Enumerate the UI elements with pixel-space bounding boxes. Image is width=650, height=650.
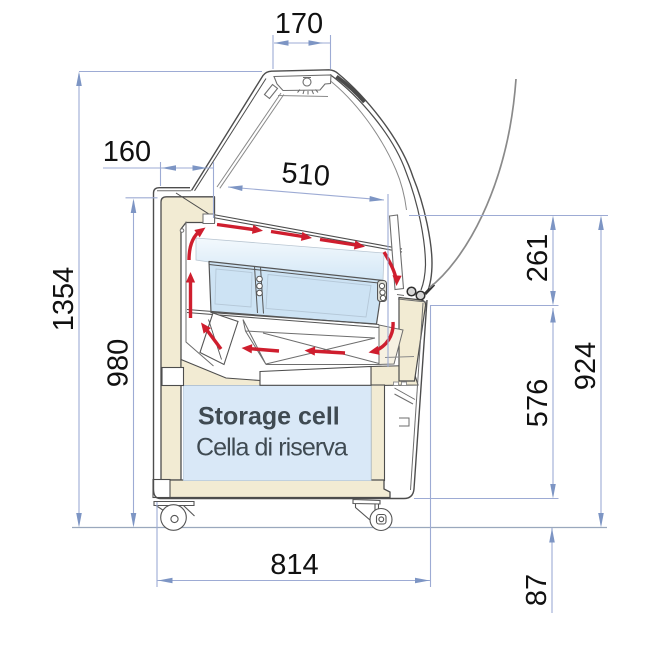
svg-text:Cella di riserva: Cella di riserva (196, 434, 348, 462)
svg-text:510: 510 (280, 157, 331, 193)
svg-text:576: 576 (522, 379, 554, 427)
svg-text:924: 924 (570, 342, 602, 390)
svg-text:814: 814 (270, 549, 318, 581)
svg-text:261: 261 (522, 234, 554, 282)
svg-text:1354: 1354 (48, 267, 80, 332)
svg-text:980: 980 (103, 339, 135, 387)
svg-text:Storage cell: Storage cell (198, 403, 340, 431)
svg-text:87: 87 (521, 574, 553, 606)
svg-text:170: 170 (275, 8, 323, 40)
svg-text:160: 160 (103, 136, 151, 168)
